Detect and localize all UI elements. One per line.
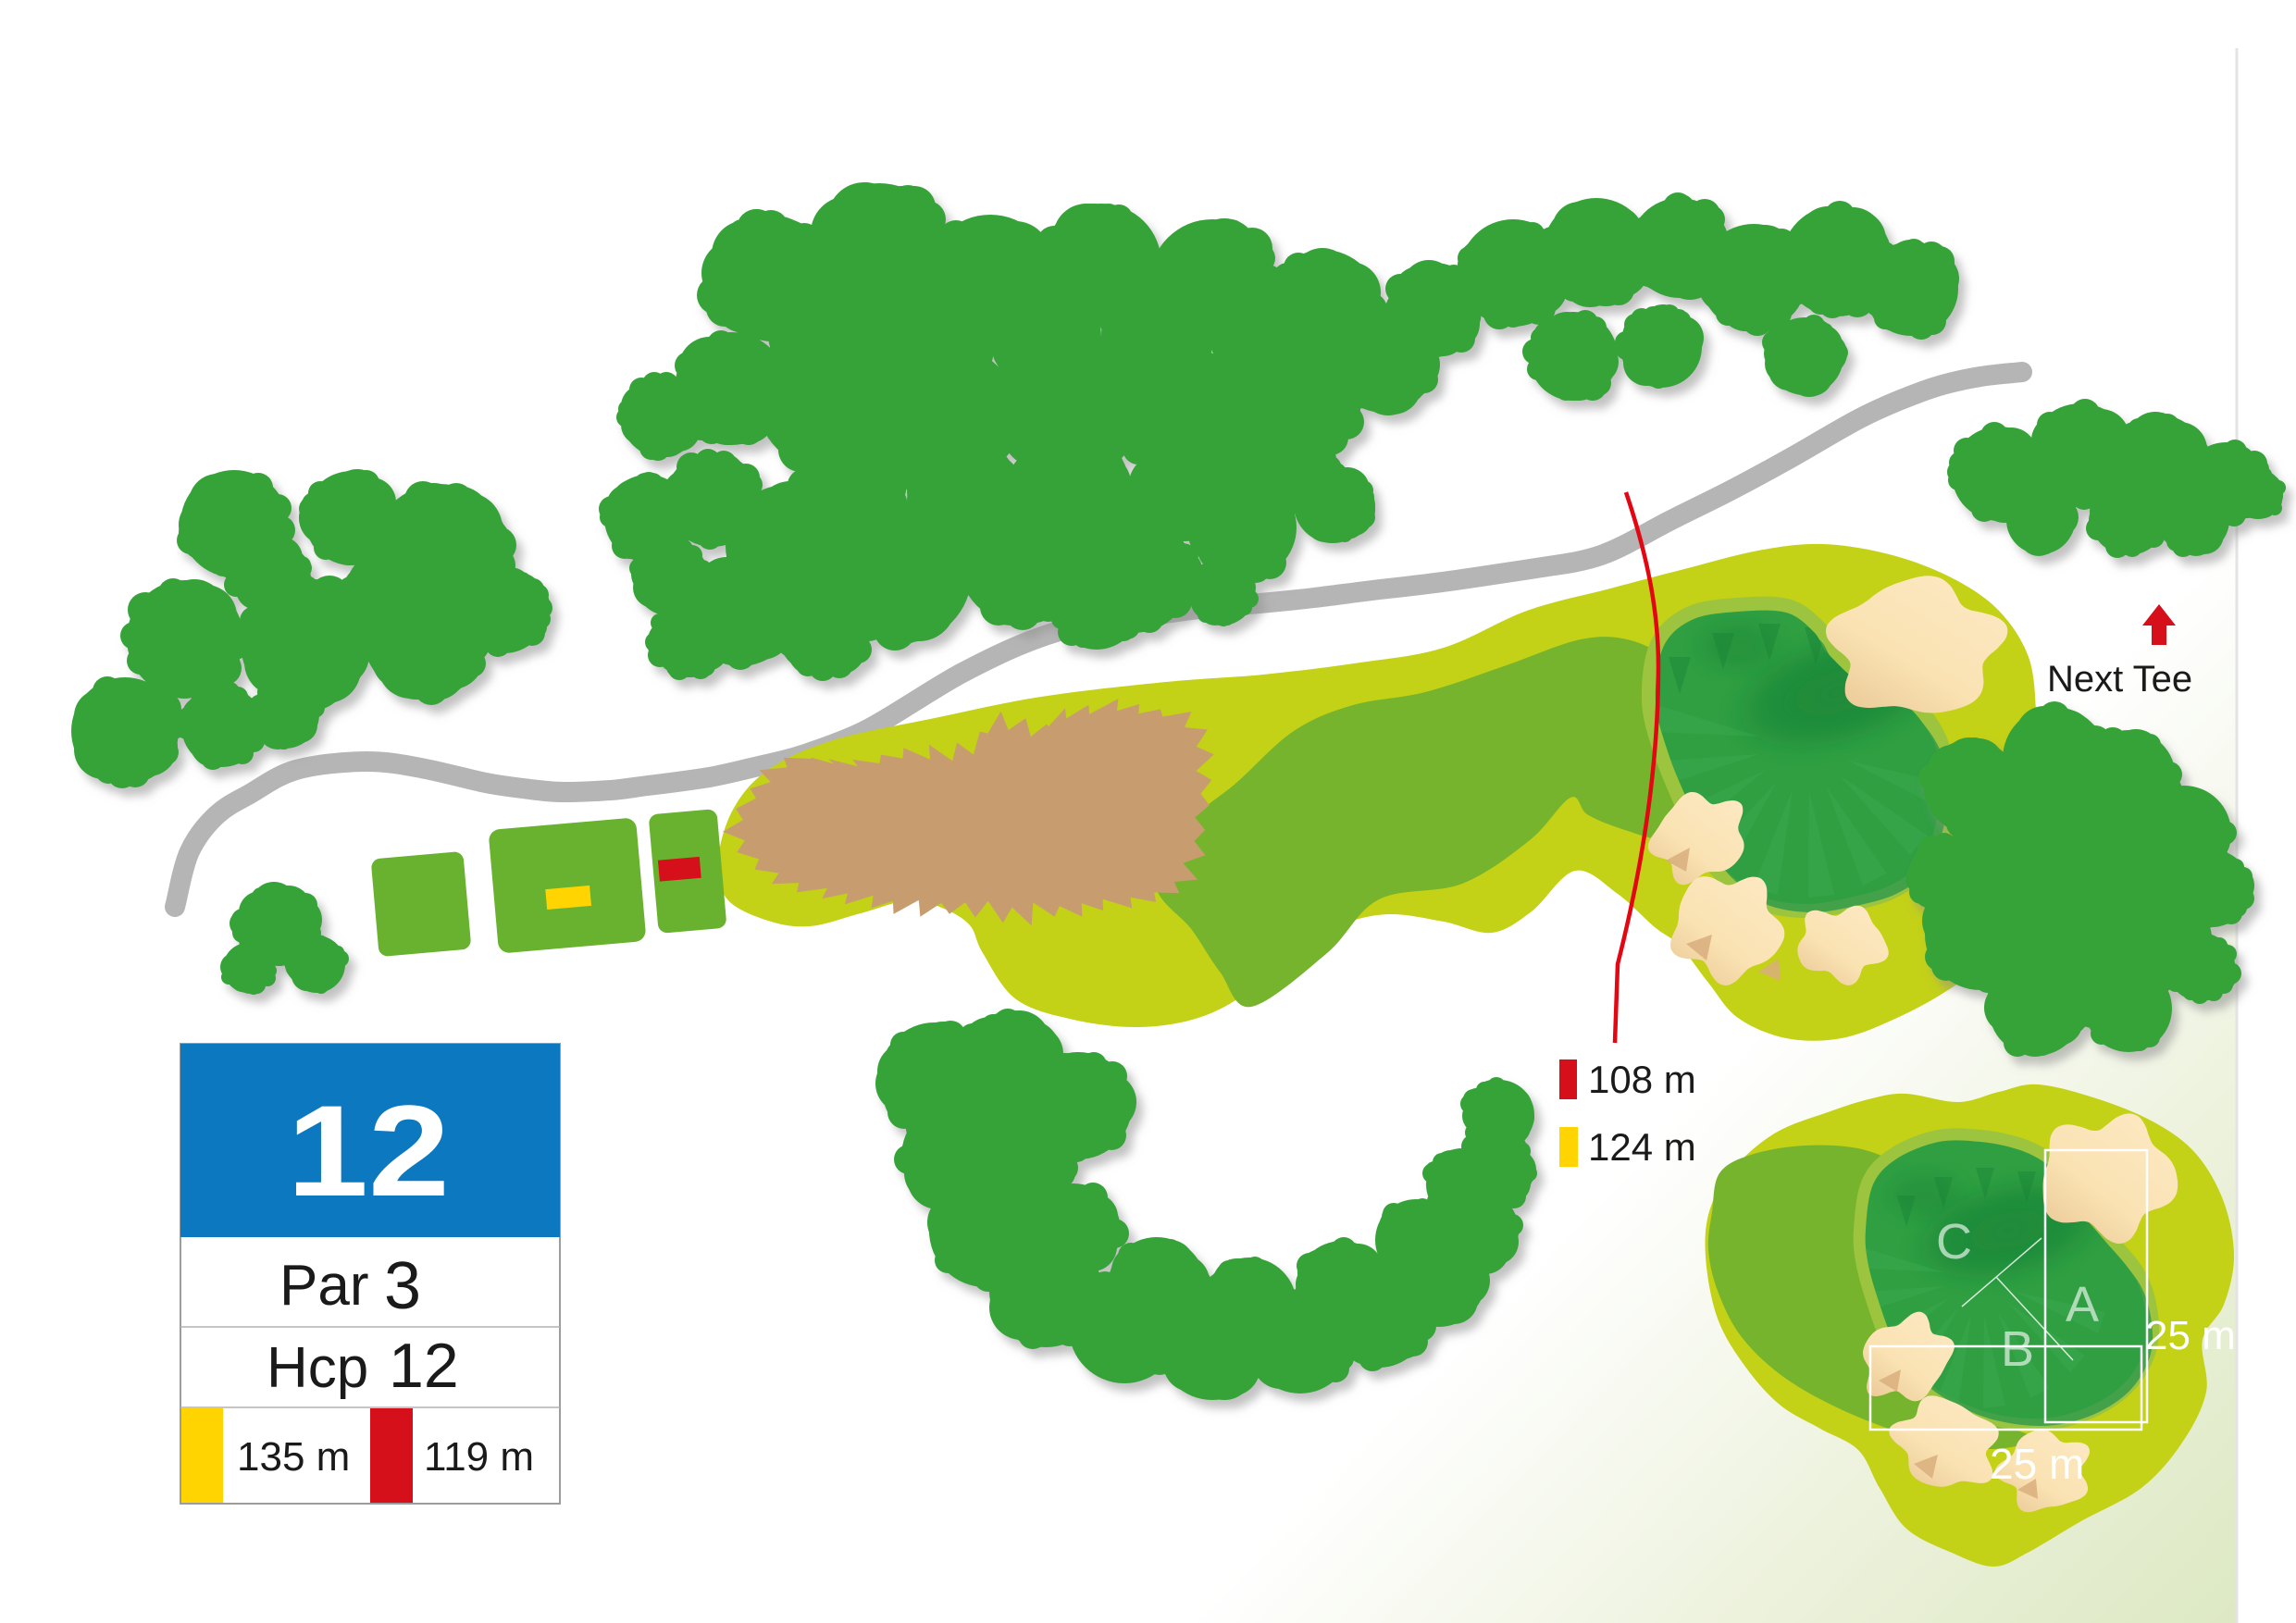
svg-text:135 m: 135 m <box>237 1434 350 1480</box>
svg-text:119 m: 119 m <box>424 1434 534 1480</box>
svg-text:124 m: 124 m <box>1588 1125 1696 1169</box>
svg-text:108 m: 108 m <box>1588 1058 1696 1101</box>
svg-text:Next Tee: Next Tee <box>2047 659 2192 700</box>
svg-text:12: 12 <box>389 1331 459 1401</box>
svg-text:A: A <box>2066 1277 2099 1332</box>
svg-text:Par: Par <box>279 1254 368 1318</box>
svg-text:C: C <box>1936 1214 1972 1270</box>
svg-text:3: 3 <box>384 1249 421 1323</box>
svg-text:12: 12 <box>287 1078 450 1223</box>
svg-text:Hcp: Hcp <box>267 1336 368 1400</box>
svg-text:B: B <box>2001 1321 2034 1377</box>
svg-text:25 m: 25 m <box>2145 1313 2236 1358</box>
svg-text:25 m: 25 m <box>1990 1440 2084 1488</box>
